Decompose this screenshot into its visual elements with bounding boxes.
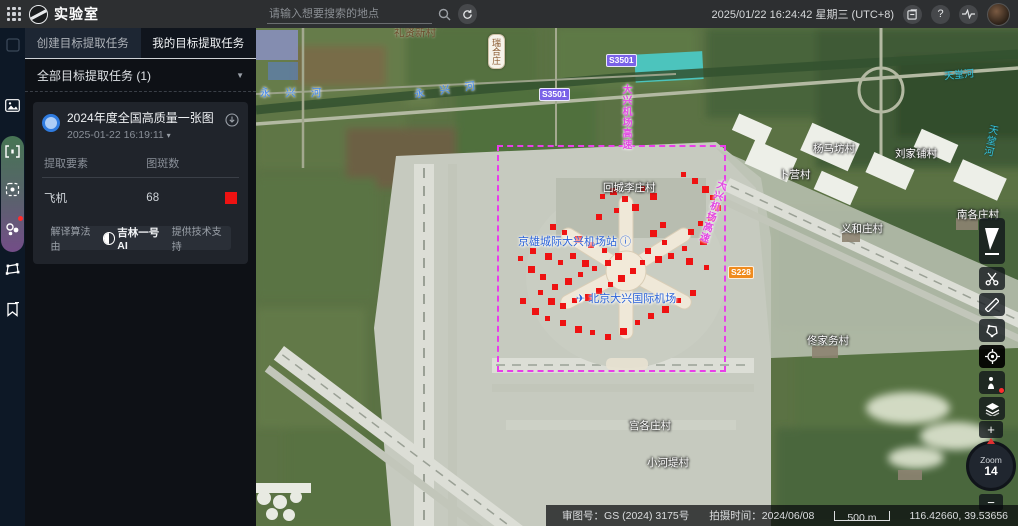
map-toolbar [979,218,1005,420]
task-filter-dropdown[interactable]: 全部目标提取任务 (1) ▼ [25,59,256,92]
feature-count: 68 [146,192,225,204]
aircraft-detection-box [704,265,709,270]
feature-name: 飞机 [44,190,146,206]
aircraft-detection-box [545,316,550,321]
aircraft-detection-box [650,193,657,200]
aircraft-detection-box [558,260,563,265]
aircraft-detection-box [550,224,556,230]
chevron-down-icon: ▼ [236,71,244,80]
feature-color-swatch [225,192,237,204]
polygon-draw-icon[interactable] [0,258,25,280]
aircraft-detection-box [662,306,669,313]
aircraft-detection-box [681,172,686,177]
zoom-in-button[interactable]: + [979,421,1003,438]
task-tabs: 创建目标提取任务我的目标提取任务 [25,28,256,59]
result-table: 提取要素 图斑数 飞机68 [42,155,239,210]
road-shield: S3501 [606,54,637,67]
aircraft-detection-box [635,320,640,325]
aircraft-detection-box [662,240,667,245]
aircraft-detection-box [645,248,651,254]
aircraft-detection-box [602,248,607,253]
aircraft-detection-box [530,248,536,254]
aircraft-detection-box [570,253,576,259]
aircraft-detection-box [668,253,674,259]
aircraft-detection-box [528,266,535,273]
tab-my-tasks[interactable]: 我的目标提取任务 [141,28,257,58]
left-icon-rail [0,28,25,526]
street-view-tool[interactable] [979,371,1005,394]
app-title: 实验室 [54,4,99,24]
algorithm-credit-button[interactable]: 解译算法由 吉林一号AI 提供技术支持 [51,226,231,250]
note-icon[interactable] [903,5,922,24]
satellite-basemap [256,28,1018,526]
zoom-control: + Zoom 14 − [968,421,1014,511]
aircraft-detection-box [676,298,681,303]
help-icon[interactable]: ? [931,5,950,24]
zoom-dial-pointer [987,438,995,444]
jilin1-ai-brand: 吉林一号AI [103,225,169,252]
aircraft-detection-box [560,320,566,326]
aircraft-detection-box [538,290,543,295]
aircraft-detection-box [686,258,693,265]
aircraft-detection-box [592,266,597,271]
aircraft-detection-box [548,298,555,305]
aircraft-detection-box [702,186,709,193]
brand-logo-icon [29,5,48,24]
aircraft-detection-box [700,238,707,245]
search-icon[interactable] [436,4,455,24]
layers-tool[interactable] [979,397,1005,420]
reset-view-icon[interactable] [458,4,477,24]
road-shield: S3501 [539,88,570,101]
tab-create-task[interactable]: 创建目标提取任务 [25,28,141,58]
aircraft-detection-box [630,268,636,274]
measure-tool[interactable] [979,293,1005,316]
aircraft-detection-box [575,326,582,333]
task-time-dropdown[interactable]: 2025-01-22 16:19:11 ▾ [67,129,225,141]
col-feature: 提取要素 [44,155,146,171]
aircraft-detection-box [596,214,602,220]
task-title: 2024年度全国高质量一张图 [67,111,225,126]
algo-prefix: 解译算法由 [51,223,100,253]
scale-bar: 500 m [834,511,889,521]
road-shield: S228 [728,266,754,279]
aircraft-detection-box [688,229,694,235]
aircraft-detection-box [585,294,592,301]
aircraft-detection-box [690,290,696,296]
table-row: 飞机68 [42,178,239,210]
aircraft-detection-box [575,236,582,243]
aircraft-detection-box [560,303,566,309]
app-window: 实验室 2025/01/22 16:24:42 星期三 (UTC+8) ? [0,0,1018,526]
user-avatar[interactable] [987,3,1010,26]
zoom-dial[interactable]: Zoom 14 [966,441,1016,491]
aircraft-detection-box [605,334,611,340]
street-view-dot [999,388,1004,393]
aircraft-detection-box [532,308,539,315]
datetime-label: 2025/01/22 16:24:42 星期三 (UTC+8) [711,6,894,22]
aircraft-detection-box [600,194,605,199]
cursor-coordinates: 116.42660, 39.53656 [910,510,1008,522]
aircraft-detection-box [562,230,567,235]
aircraft-detection-box [588,242,594,248]
aircraft-detection-box [660,222,666,228]
aircraft-detection-box [708,214,715,221]
aircraft-detection-box [545,253,552,260]
aircraft-detection-box [518,256,523,261]
task-radio[interactable] [42,114,60,132]
download-icon[interactable] [225,113,239,132]
aircraft-detection-box [596,288,602,294]
col-count: 图斑数 [146,155,225,171]
aircraft-detection-box [632,204,639,211]
algo-suffix: 提供技术支持 [172,223,231,253]
aircraft-detection-box [582,260,589,267]
aircraft-detection-box [572,298,577,303]
aircraft-detection-box [655,256,662,263]
status-bar: 审图号：GS (2024) 3175号 拍摄时间：2024/06/08 500 … [546,505,1018,526]
aircraft-detection-box [715,205,721,211]
aircraft-detection-box [520,298,526,304]
jilin1-logo-icon [103,232,116,245]
notification-dot [18,216,23,221]
compare-split-icon[interactable] [0,140,25,162]
locate-tool[interactable] [979,345,1005,368]
aircraft-detection-box [622,196,628,202]
map-canvas[interactable]: 礼贤新村瑞合庄永 兴 河永 兴 河大兴机场高速大兴机场高速回城李庄村京雄城际大兴… [256,28,1018,526]
aircraft-detection-box [590,330,595,335]
aircraft-detection-box [650,230,657,237]
aircraft-detection-box [565,278,572,285]
aircraft-detection-box [552,284,558,290]
clip-tool[interactable] [979,267,1005,290]
task-card[interactable]: 2024年度全国高质量一张图 2025-01-22 16:19:11 ▾ 提取要… [33,102,248,264]
select-region-icon[interactable] [0,178,25,200]
top-bar: 实验室 2025/01/22 16:24:42 星期三 (UTC+8) ? [0,0,1018,28]
search-input[interactable] [267,5,432,24]
aircraft-detection-box [692,178,698,184]
aircraft-detection-box [682,246,687,251]
bookmark-add-icon[interactable] [0,298,25,320]
basemap-icon[interactable] [0,34,25,56]
zoom-level: 14 [984,465,997,477]
aircraft-detection-box [540,274,546,280]
aircraft-detection-box [710,195,715,200]
task-filter-label: 全部目标提取任务 (1) [37,67,151,84]
aircraft-detection-box [610,188,617,195]
aircraft-detection-box [618,275,625,282]
aircraft-detection-box [578,272,583,277]
aircraft-detection-box [698,221,703,226]
aircraft-detection-box [620,328,627,335]
ai-extract-icon[interactable] [0,218,25,240]
aircraft-detection-box [615,253,622,260]
aircraft-detection-box [640,186,645,191]
activity-pulse-icon[interactable] [959,5,978,24]
draw-polygon-tool[interactable] [979,319,1005,342]
app-grid-icon[interactable] [7,7,21,21]
aircraft-detection-box [640,260,645,265]
imagery-icon[interactable] [0,94,25,116]
capture-date: 拍摄时间：2024/06/08 [709,508,814,523]
task-panel: 创建目标提取任务我的目标提取任务 全部目标提取任务 (1) ▼ 2024年度全国… [25,28,256,526]
aircraft-detection-box [648,313,654,319]
map-license-number: 审图号：GS (2024) 3175号 [562,508,689,523]
aircraft-detection-box [605,260,611,266]
swipe-compare-tool[interactable] [979,218,1005,264]
aircraft-detection-box [614,208,619,213]
aircraft-detection-box [608,282,613,287]
